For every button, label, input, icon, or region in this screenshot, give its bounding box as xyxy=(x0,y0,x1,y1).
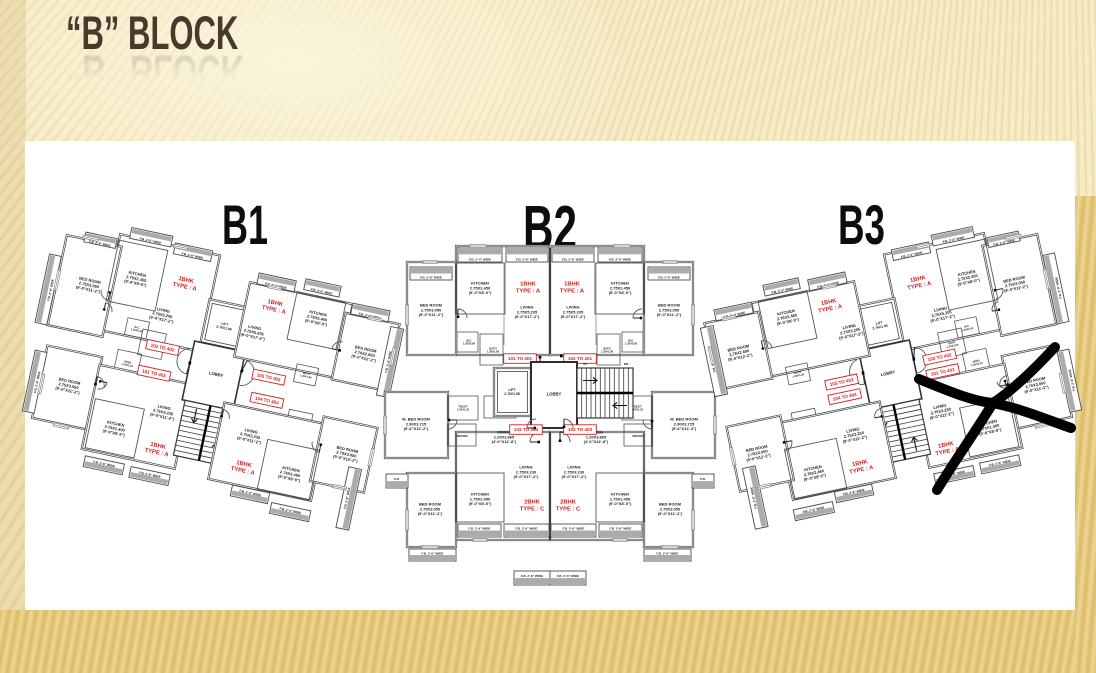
svg-text:F.B. 2'-6" WIDE: F.B. 2'-6" WIDE xyxy=(658,276,680,280)
svg-text:F.B. 2'-6" WIDE: F.B. 2'-6" WIDE xyxy=(562,257,584,261)
svg-text:KITCHEN2.75X2.450(9'-0"X8'-0"): KITCHEN2.75X2.450(9'-0"X8'-0") xyxy=(469,281,492,295)
svg-text:B3: B3 xyxy=(838,193,885,256)
svg-text:BED ROOM2.75X3.050(9'-0"X11'-2: BED ROOM2.75X3.050(9'-0"X11'-2") xyxy=(418,502,443,516)
svg-text:WD/WM: WD/WM xyxy=(632,434,644,438)
svg-text:F.B. 2'-6" WIDE: F.B. 2'-6" WIDE xyxy=(469,527,491,531)
svg-text:F.B.: F.B. xyxy=(394,477,400,481)
svg-text:F.B. 2'-6" WIDE: F.B. 2'-6" WIDE xyxy=(557,574,579,578)
svg-text:F.B. 2'-6" WIDE: F.B. 2'-6" WIDE xyxy=(563,527,585,531)
svg-text:WD/WM: WD/WM xyxy=(456,434,468,438)
svg-text:KITCHEN1.75X2.450(9'-0"X8'-0"): KITCHEN1.75X2.450(9'-0"X8'-0") xyxy=(609,492,632,506)
svg-text:BED ROOM2.75X3.050(9'-0"X11'-2: BED ROOM2.75X3.050(9'-0"X11'-2") xyxy=(658,502,683,516)
svg-text:BED ROOM2.75X3.050(9'-0"X11'-2: BED ROOM2.75X3.050(9'-0"X11'-2") xyxy=(419,303,444,317)
svg-text:102 TO 401: 102 TO 401 xyxy=(568,356,593,361)
svg-text:F.B. 2'-4" WIDE: F.B. 2'-4" WIDE xyxy=(609,257,631,261)
svg-text:F.B. 2'-6" WIDE: F.B. 2'-6" WIDE xyxy=(610,527,632,531)
svg-text:BED ROOM2.75X3.050(9'-0"X11'-2: BED ROOM2.75X3.050(9'-0"X11'-2") xyxy=(657,303,682,317)
svg-text:F.B. 2'-6" WIDE: F.B. 2'-6" WIDE xyxy=(657,551,679,555)
svg-text:DRES1.00X2.30: DRES1.00X2.30 xyxy=(121,359,135,368)
svg-text:F.B. 2'-6" WIDE: F.B. 2'-6" WIDE xyxy=(516,527,538,531)
svg-text:101 TO 401: 101 TO 401 xyxy=(508,356,533,361)
svg-text:M. BED ROOM2.90X3.715(9'-6"X12: M. BED ROOM2.90X3.715(9'-6"X12'-2") xyxy=(402,417,430,431)
svg-text:F.B. 2'-6" WIDE: F.B. 2'-6" WIDE xyxy=(521,574,543,578)
svg-text:F.B. 2'-6" WIDE: F.B. 2'-6" WIDE xyxy=(420,276,442,280)
svg-text:103 TO 403: 103 TO 403 xyxy=(568,427,593,432)
svg-text:F.B. 2'-6" WIDE: F.B. 2'-6" WIDE xyxy=(516,257,538,261)
svg-text:LOBBY: LOBBY xyxy=(547,392,562,397)
svg-text:F.B. 2'-4" WIDE: F.B. 2'-4" WIDE xyxy=(469,257,491,261)
svg-text:DN: DN xyxy=(624,362,628,366)
svg-text:M. BED ROOM2.90X3.715(9'-6"X12: M. BED ROOM2.90X3.715(9'-6"X12'-2") xyxy=(670,417,698,431)
svg-text:KITCHEN1.75X2.450(9'-0"X8'-0"): KITCHEN1.75X2.450(9'-0"X8'-0") xyxy=(469,492,492,506)
svg-text:TOILET1.20X1.35: TOILET1.20X1.35 xyxy=(457,404,470,411)
svg-text:F.B. 2'-6" WIDE: F.B. 2'-6" WIDE xyxy=(422,551,444,555)
svg-text:UP: UP xyxy=(583,362,587,366)
svg-text:F.B.: F.B. xyxy=(700,477,706,481)
svg-text:DRES1.00X2.30: DRES1.00X2.30 xyxy=(970,358,984,367)
svg-text:B1: B1 xyxy=(222,193,268,256)
svg-text:KITCHEN2.75X2.450(9'-0"X8'-0"): KITCHEN2.75X2.450(9'-0"X8'-0") xyxy=(609,281,632,295)
